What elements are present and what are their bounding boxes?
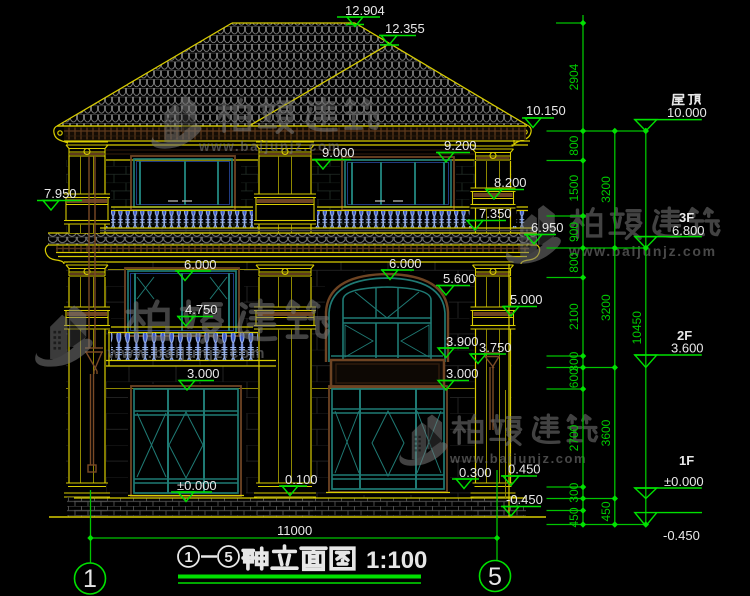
svg-text:7.950: 7.950 bbox=[44, 186, 77, 201]
svg-text:10.150: 10.150 bbox=[526, 103, 566, 118]
svg-text:1:100: 1:100 bbox=[366, 547, 427, 574]
svg-text:1500: 1500 bbox=[567, 175, 581, 202]
svg-text:450: 450 bbox=[567, 507, 581, 527]
svg-text:7.350: 7.350 bbox=[479, 206, 512, 221]
svg-text:3200: 3200 bbox=[599, 176, 613, 203]
svg-text:-0.450: -0.450 bbox=[506, 492, 543, 507]
svg-text:3600: 3600 bbox=[599, 419, 613, 446]
svg-text:www.baijunjz.com: www.baijunjz.com bbox=[107, 345, 266, 362]
svg-text:3.900: 3.900 bbox=[446, 334, 479, 349]
svg-text:8.200: 8.200 bbox=[494, 175, 527, 190]
svg-text:4.750: 4.750 bbox=[185, 302, 218, 317]
svg-text:6.950: 6.950 bbox=[531, 220, 564, 235]
svg-text:1F: 1F bbox=[679, 453, 694, 468]
svg-text:800: 800 bbox=[567, 135, 581, 155]
svg-text:1: 1 bbox=[83, 565, 97, 593]
svg-text:3200: 3200 bbox=[599, 294, 613, 321]
svg-text:2700: 2700 bbox=[567, 424, 581, 451]
svg-text:6.000: 6.000 bbox=[184, 257, 217, 272]
svg-text:5: 5 bbox=[224, 549, 232, 566]
svg-text:9.000: 9.000 bbox=[322, 145, 355, 160]
svg-text:5: 5 bbox=[488, 563, 502, 591]
svg-text:800: 800 bbox=[567, 252, 581, 272]
svg-text:3.000: 3.000 bbox=[446, 366, 479, 381]
svg-text:0.100: 0.100 bbox=[285, 472, 318, 487]
svg-text:12.355: 12.355 bbox=[385, 21, 425, 36]
svg-text:900: 900 bbox=[567, 222, 581, 242]
svg-text:12.904: 12.904 bbox=[345, 3, 385, 18]
svg-text:10.000: 10.000 bbox=[667, 105, 707, 120]
svg-text:3.600: 3.600 bbox=[671, 341, 704, 356]
svg-text:5.000: 5.000 bbox=[510, 292, 543, 307]
svg-text:2904: 2904 bbox=[567, 63, 581, 90]
svg-text:2100: 2100 bbox=[567, 303, 581, 330]
svg-text:5.600: 5.600 bbox=[443, 271, 476, 286]
svg-text:450: 450 bbox=[599, 501, 613, 521]
svg-text:0.450: 0.450 bbox=[508, 462, 541, 477]
svg-text:6.000: 6.000 bbox=[389, 256, 422, 271]
svg-text:6.800: 6.800 bbox=[672, 223, 705, 238]
svg-text:600: 600 bbox=[567, 368, 581, 388]
svg-text:9.200: 9.200 bbox=[444, 138, 477, 153]
svg-text:3.750: 3.750 bbox=[479, 340, 512, 355]
svg-text:±0.000: ±0.000 bbox=[177, 478, 217, 493]
svg-text:0.300: 0.300 bbox=[459, 465, 492, 480]
svg-text:11000: 11000 bbox=[277, 523, 312, 538]
svg-text:-0.450: -0.450 bbox=[663, 528, 700, 543]
svg-text:1: 1 bbox=[184, 549, 192, 566]
svg-text:10450: 10450 bbox=[630, 311, 644, 345]
svg-text:www.baijunjz.com: www.baijunjz.com bbox=[198, 139, 341, 154]
svg-text:±0.000: ±0.000 bbox=[664, 474, 704, 489]
svg-text:300: 300 bbox=[567, 482, 581, 502]
svg-text:3.000: 3.000 bbox=[187, 366, 220, 381]
